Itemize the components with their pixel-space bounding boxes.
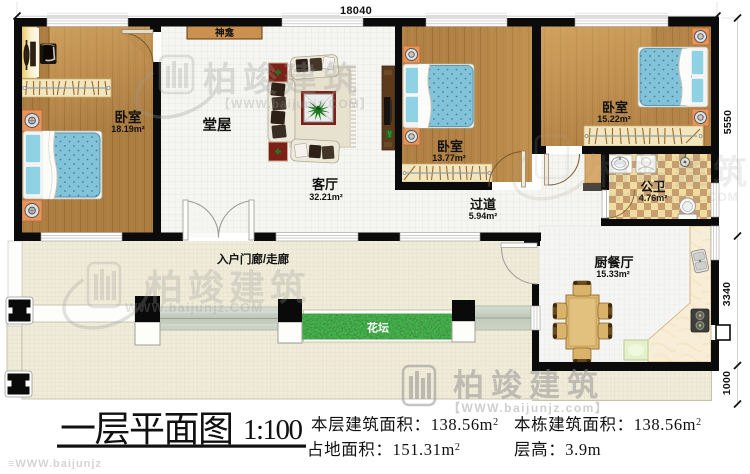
svg-text:【WWW.baijunjz.COM】: 【WWW.baijunjz.COM】 bbox=[218, 96, 373, 111]
svg-text:5550: 5550 bbox=[722, 110, 734, 135]
svg-text:18040: 18040 bbox=[340, 5, 372, 17]
svg-text:本层建筑面积：138.56m2: 本层建筑面积：138.56m2 bbox=[311, 415, 499, 434]
svg-text:15.22m²: 15.22m² bbox=[597, 114, 631, 124]
svg-text:13.77m²: 13.77m² bbox=[432, 153, 466, 163]
svg-text:18.19m²: 18.19m² bbox=[111, 124, 145, 134]
svg-text:3340: 3340 bbox=[721, 282, 733, 307]
svg-text:卧室: 卧室 bbox=[437, 139, 463, 154]
svg-text:32.21m²: 32.21m² bbox=[309, 192, 343, 202]
svg-text:≡WWW.baijunjz: ≡WWW.baijunjz bbox=[8, 458, 102, 469]
svg-text:神龛: 神龛 bbox=[215, 27, 235, 39]
svg-text:本栋建筑面积：138.56m2: 本栋建筑面积：138.56m2 bbox=[514, 415, 702, 434]
svg-text:厨餐厅: 厨餐厅 bbox=[594, 255, 633, 270]
svg-text:卧室: 卧室 bbox=[602, 100, 628, 115]
svg-text:一层平面图: 一层平面图 bbox=[60, 409, 234, 449]
svg-text:15.33m²: 15.33m² bbox=[596, 269, 630, 279]
svg-text:【WWW.baijunjz.com】: 【WWW.baijunjz.com】 bbox=[448, 400, 608, 415]
svg-text:WWW.baijunjz.COM: WWW.baijunjz.COM bbox=[610, 190, 739, 204]
svg-text:柏竣建筑: 柏竣建筑 bbox=[453, 368, 605, 403]
svg-text:占地面积：151.31m2: 占地面积：151.31m2 bbox=[307, 440, 461, 459]
svg-text:过道: 过道 bbox=[470, 197, 496, 212]
svg-text:柏竣建筑: 柏竣建筑 bbox=[596, 153, 750, 192]
svg-text:入户门廊/走廊: 入户门廊/走廊 bbox=[217, 252, 290, 266]
svg-text:层高：3.9m: 层高：3.9m bbox=[514, 440, 601, 459]
svg-text:1000: 1000 bbox=[721, 371, 733, 396]
svg-text:客厅: 客厅 bbox=[312, 177, 338, 192]
svg-text:5.94m²: 5.94m² bbox=[469, 211, 498, 221]
svg-text:柏竣建筑: 柏竣建筑 bbox=[203, 60, 363, 99]
svg-text:WWW.baijunjz.COM: WWW.baijunjz.COM bbox=[125, 300, 263, 315]
svg-text:堂屋: 堂屋 bbox=[203, 116, 232, 134]
svg-text:1:100: 1:100 bbox=[243, 414, 303, 446]
svg-text:花坛: 花坛 bbox=[367, 321, 389, 335]
svg-text:卧室: 卧室 bbox=[115, 109, 142, 125]
